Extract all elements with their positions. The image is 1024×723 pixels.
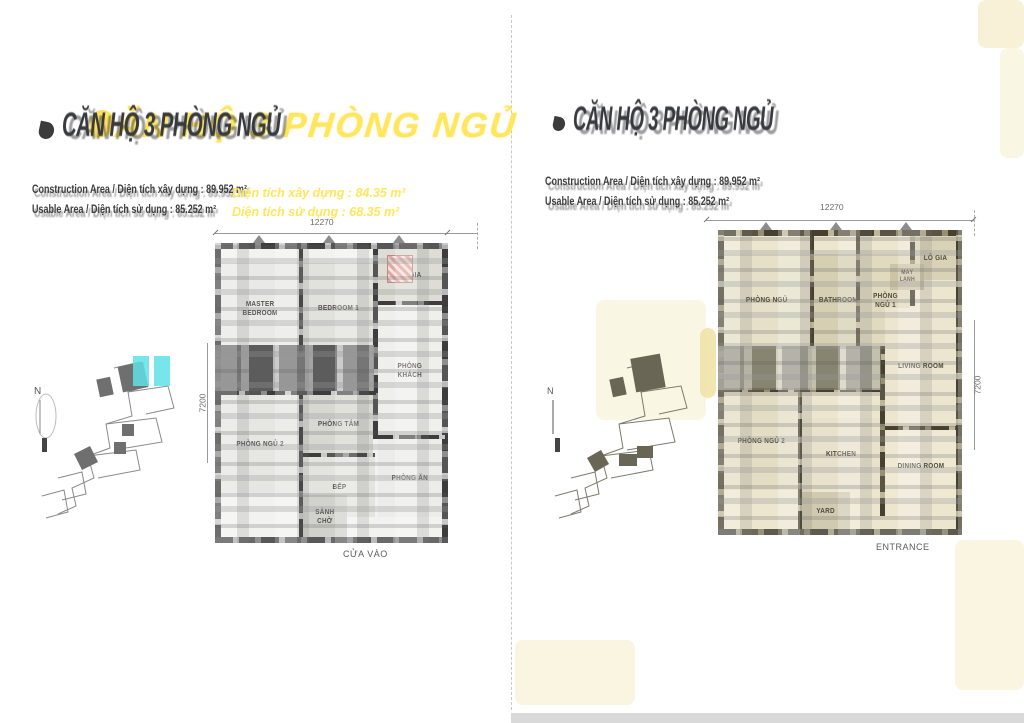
- room-bedroom2: PHÒNG NGỦ 2: [221, 395, 299, 493]
- balcony-tick-icon: [323, 235, 335, 243]
- room-dining: DINING ROOM: [885, 430, 956, 502]
- right-floorplan-wrap: 12270 7200: [718, 230, 962, 535]
- right-info-line1: Construction Area / Diện tích xây dựng :…: [545, 176, 760, 188]
- bullet-icon: [37, 121, 55, 141]
- right-dim-side: 7200: [968, 230, 982, 535]
- left-dim-top-label: 12270: [310, 217, 334, 227]
- wall: [215, 537, 448, 543]
- wall: [956, 230, 962, 535]
- wall: [442, 243, 448, 543]
- left-info-line1: Construction Area / Diện tích xây dựng :…: [32, 184, 247, 196]
- left-dim-side: 7200: [199, 243, 213, 543]
- balcony-tick-icon: [830, 222, 842, 230]
- keyplan-sketch-icon: N: [541, 338, 726, 528]
- room-bedroom1: BEDROOM 1: [303, 263, 373, 353]
- right-title-block: CĂN HỘ 3 PHÒNG NGỦ CĂN HỘ 3 PHÒNG NGỦ: [573, 96, 803, 148]
- right-page: CĂN HỘ 3 PHÒNG NGỦ CĂN HỘ 3 PHÒNG NGỦ Co…: [511, 0, 1024, 723]
- unit-highlight-cyan-1: [133, 356, 149, 386]
- left-keyplan: N: [28, 338, 213, 528]
- watermark-band: [215, 345, 374, 391]
- right-entrance-label: ENTRANCE: [876, 542, 930, 552]
- right-info-line2: Usable Area / Diện tích sử dụng : 85.252…: [545, 196, 729, 208]
- north-label: N: [547, 386, 554, 396]
- room-living: PHÒNG KHÁCH: [378, 305, 442, 435]
- room-bathroom: BATHROOM: [814, 254, 856, 346]
- left-info-line1-yellow: Diện tích xây dựng : 84.35 m²: [232, 186, 406, 200]
- right-dim-top-label: 12270: [820, 202, 844, 212]
- north-label: N: [34, 386, 41, 397]
- balcony-tick-icon: [900, 222, 912, 230]
- room-bathroom: PHÒNG TẮM: [303, 395, 373, 453]
- left-page: CĂN HỘ 3 PHÒNG NGỦ CĂN HỘ 3 PHÒNG NGỦ CĂ…: [0, 0, 511, 723]
- balcony-tick-icon: [760, 222, 772, 230]
- room-kitchen: KITCHEN: [802, 418, 880, 490]
- right-keyplan: N: [541, 338, 726, 528]
- balcony-tick-icon: [393, 235, 405, 243]
- keyplan-sketch-icon: N: [28, 338, 213, 528]
- left-floorplan-wrap: 12270 7200: [215, 243, 448, 543]
- balcony-tick-icon: [253, 235, 265, 243]
- right-floorplan: PHÒNG NGỦ BATHROOM PHÒNG NGỦ 1 LÔ GIA MÁ…: [718, 230, 962, 535]
- room-bedroom: PHÒNG NGỦ: [724, 254, 810, 346]
- watermark-band: [718, 346, 881, 390]
- brochure-canvas: CĂN HỘ 3 PHÒNG NGỦ CĂN HỘ 3 PHÒNG NGỦ CĂ…: [0, 0, 1024, 723]
- room-yard: YARD: [802, 492, 850, 529]
- right-dim-side-label: 7200: [972, 376, 982, 395]
- aircon-hatch: [387, 255, 413, 283]
- bullet-icon: [552, 116, 567, 132]
- right-title-dark: CĂN HỘ 3 PHÒNG NGỦ: [573, 100, 773, 139]
- wall: [718, 529, 962, 535]
- left-title-block: CĂN HỘ 3 PHÒNG NGỦ CĂN HỘ 3 PHÒNG NGỦ CĂ…: [62, 100, 507, 156]
- room-master-bedroom: MASTER BEDROOM: [221, 263, 299, 353]
- left-info-line2: Usable Area / Diện tích sử dụng : 85.252…: [32, 204, 216, 216]
- room-aircon: MÁY LẠNH: [890, 264, 924, 290]
- left-entrance-label: CỬA VÀO: [343, 549, 388, 559]
- left-dim-side-label: 7200: [197, 394, 207, 413]
- unit-highlight-cyan-2: [154, 356, 170, 386]
- left-floorplan: MASTER BEDROOM BEDROOM 1 LÔ GIA PHÒNG KH…: [215, 243, 448, 543]
- left-title-dark: CĂN HỘ 3 PHÒNG NGỦ: [62, 106, 280, 145]
- room-bedroom2: PHÒNG NGỦ 2: [724, 392, 798, 490]
- room-living: LIVING ROOM: [885, 308, 956, 423]
- room-dining: PHÒNG ĂN: [378, 439, 442, 517]
- room-lobby: SẢNH CHỜ: [303, 495, 347, 537]
